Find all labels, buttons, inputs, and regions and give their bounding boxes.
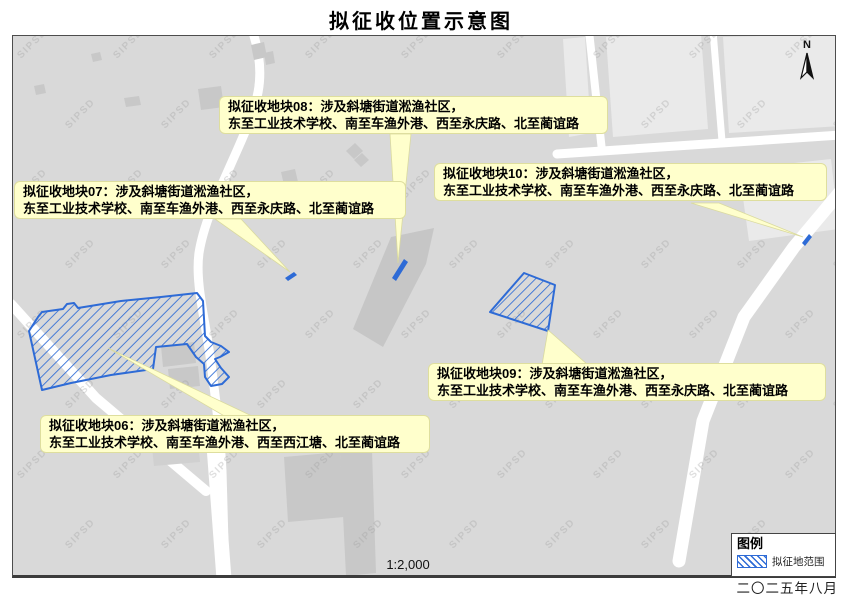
callout-line-2: 东至工业技术学校、南至车渔外港、西至永庆路、北至蔺谊路: [228, 115, 599, 132]
legend-title: 图例: [737, 536, 830, 552]
page: 拟征收位置示意图: [0, 0, 842, 595]
callout-line-2: 东至工业技术学校、南至车渔外港、西至西江塘、北至蔺谊路: [49, 434, 421, 451]
callout-block-10: 拟征收地块10：涉及斜塘街道淞渔社区， 东至工业技术学校、南至车渔外港、西至永庆…: [434, 163, 827, 201]
north-arrow: N: [795, 40, 819, 86]
callout-line-2: 东至工业技术学校、南至车渔外港、西至永庆路、北至蔺谊路: [443, 182, 818, 199]
callout-line-1: 拟征收地块08：涉及斜塘街道淞渔社区，: [228, 98, 599, 115]
scale-label: 1:2,000: [358, 557, 458, 572]
legend: 图例 拟征地范围: [731, 533, 836, 577]
north-label: N: [795, 40, 819, 51]
map-date: 二〇二五年八月: [690, 577, 838, 595]
legend-item-label: 拟征地范围: [772, 554, 825, 569]
callout-line-1: 拟征收地块09：涉及斜塘街道淞渔社区，: [437, 365, 817, 382]
legend-item: 拟征地范围: [737, 554, 830, 569]
callout-block-07: 拟征收地块07：涉及斜塘街道淞渔社区， 东至工业技术学校、南至车渔外港、西至永庆…: [14, 181, 406, 219]
callout-line-2: 东至工业技术学校、南至车渔外港、西至永庆路、北至蔺谊路: [23, 200, 397, 217]
page-title: 拟征收位置示意图: [0, 5, 842, 34]
callout-line-1: 拟征收地块06：涉及斜塘街道淞渔社区，: [49, 417, 421, 434]
callout-line-1: 拟征收地块07：涉及斜塘街道淞渔社区，: [23, 183, 397, 200]
callout-line-2: 东至工业技术学校、南至车渔外港、西至永庆路、北至蔺谊路: [437, 382, 817, 399]
callout-block-09: 拟征收地块09：涉及斜塘街道淞渔社区， 东至工业技术学校、南至车渔外港、西至永庆…: [428, 363, 826, 401]
hatch-swatch-icon: [737, 555, 767, 568]
north-arrow-icon: [795, 51, 819, 81]
callout-block-08: 拟征收地块08：涉及斜塘街道淞渔社区， 东至工业技术学校、南至车渔外港、西至永庆…: [219, 96, 608, 134]
callout-line-1: 拟征收地块10：涉及斜塘街道淞渔社区，: [443, 165, 818, 182]
callout-block-06: 拟征收地块06：涉及斜塘街道淞渔社区， 东至工业技术学校、南至车渔外港、西至西江…: [40, 415, 430, 453]
